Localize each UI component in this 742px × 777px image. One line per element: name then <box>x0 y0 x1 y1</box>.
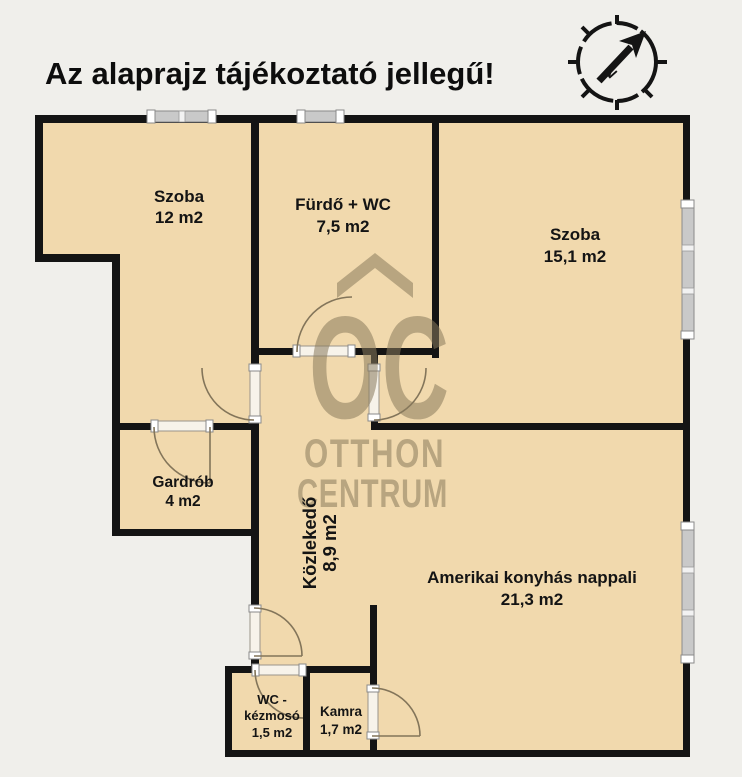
wall-furdo-bottom-left <box>251 348 296 355</box>
room-label-kozlekedo: Közlekedő <box>299 497 320 590</box>
room-area-kozlekedo: 8,9 m2 <box>319 514 340 572</box>
wall-exterior-left-upper <box>35 115 43 262</box>
compass-icon: N <box>568 15 667 110</box>
wall-exterior-top <box>35 115 690 123</box>
wall-szoba1-gardrob-right <box>210 423 258 430</box>
room-area-wc: 1,5 m2 <box>252 725 292 740</box>
floor-plan-drawing: OC OTTHON CENTRUM Szoba 12 m2 Fürdő + WC… <box>0 0 742 777</box>
wall-wc-kamra <box>303 666 310 757</box>
window-furdo <box>297 110 344 123</box>
room-area-nappali: 21,3 m2 <box>501 590 563 609</box>
wall-szoba1-furdo <box>251 115 259 367</box>
watermark-logo: OC OTTHON CENTRUM <box>297 253 449 516</box>
wall-gardrob-corridor <box>251 420 259 529</box>
room-area-szoba1: 12 m2 <box>155 208 203 227</box>
wall-wc-left <box>225 666 232 757</box>
wall-corridor-left-a <box>251 529 259 608</box>
room-area-gardrob: 4 m2 <box>165 493 200 510</box>
wall-exterior-step <box>35 254 119 262</box>
window-nappali <box>681 522 694 663</box>
wall-exterior-left-mid <box>112 254 120 536</box>
page-title: Az alaprajz tájékoztató jellegű! <box>45 56 495 91</box>
watermark-line1: OTTHON <box>304 431 445 476</box>
room-area-szoba2: 15,1 m2 <box>544 247 606 266</box>
room-label-nappali: Amerikai konyhás nappali <box>427 568 637 587</box>
wall-exterior-bottom <box>225 750 690 757</box>
room-area-furdo: 7,5 m2 <box>317 217 370 236</box>
floor-plan-page: OC OTTHON CENTRUM Szoba 12 m2 Fürdő + WC… <box>0 0 742 777</box>
wall-szoba1-gardrob-left <box>112 423 154 430</box>
window-szoba1 <box>147 110 216 123</box>
window-szoba2 <box>681 200 694 339</box>
wall-kamra-nappali-top <box>370 605 377 688</box>
room-label-kamra: Kamra <box>320 704 363 719</box>
room-label-furdo: Fürdő + WC <box>295 195 391 214</box>
wall-wc-top-b <box>303 666 377 673</box>
wall-gardrob-bottom <box>112 529 259 536</box>
room-label-wc-line2: kézmosó <box>244 708 300 723</box>
room-label-szoba1: Szoba <box>154 187 205 206</box>
room-area-kamra: 1,7 m2 <box>320 722 362 737</box>
room-label-gardrob: Gardrób <box>152 474 213 491</box>
room-label-szoba2: Szoba <box>550 225 601 244</box>
room-label-wc-line1: WC - <box>257 692 287 707</box>
watermark-monogram: OC <box>309 286 449 449</box>
